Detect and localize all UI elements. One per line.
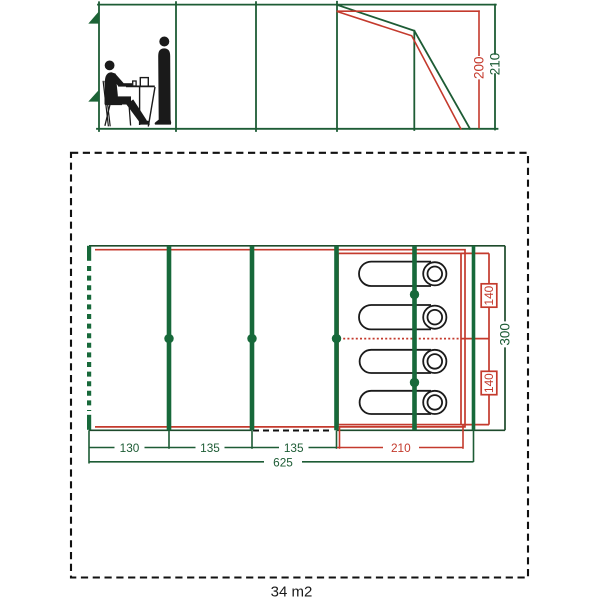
- svg-text:130: 130: [120, 441, 140, 455]
- svg-text:300: 300: [497, 323, 512, 346]
- svg-text:200: 200: [472, 56, 487, 79]
- svg-text:34 m2: 34 m2: [271, 583, 313, 600]
- svg-text:140: 140: [482, 285, 496, 305]
- svg-text:210: 210: [488, 53, 503, 76]
- svg-text:135: 135: [284, 441, 304, 455]
- svg-text:135: 135: [200, 441, 220, 455]
- svg-text:625: 625: [273, 455, 293, 469]
- svg-text:210: 210: [391, 441, 411, 455]
- svg-text:140: 140: [482, 373, 496, 393]
